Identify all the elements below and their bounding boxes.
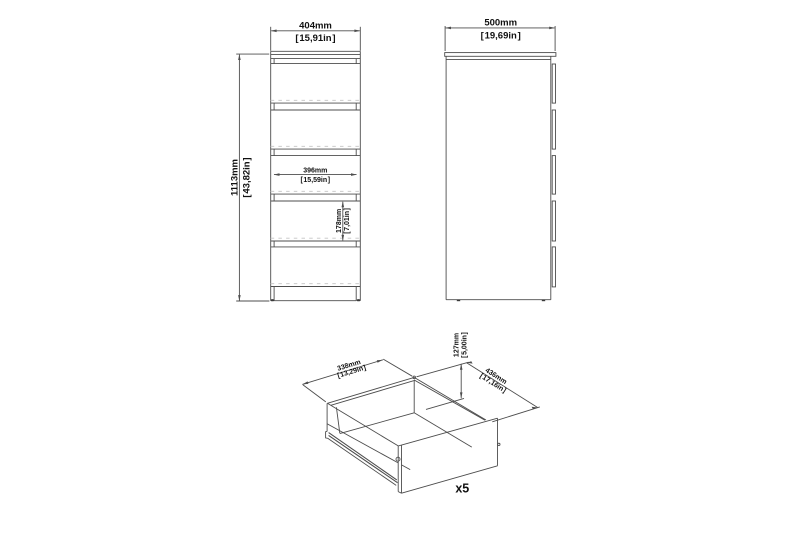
svg-text:404mm: 404mm — [299, 21, 332, 32]
svg-text:1113mm: 1113mm — [230, 159, 241, 196]
svg-text:[ 15,59in ]: [ 15,59in ] — [301, 177, 331, 184]
svg-text:x5: x5 — [455, 482, 469, 496]
svg-text:500mm: 500mm — [484, 18, 517, 29]
svg-text:127mm: 127mm — [453, 333, 460, 357]
svg-text:[ 5,00in ]: [ 5,00in ] — [462, 332, 469, 358]
svg-text:[ 15,91in ]: [ 15,91in ] — [295, 33, 335, 44]
svg-text:[ 7,01in ]: [ 7,01in ] — [344, 208, 351, 234]
svg-text:[ 43,82in ]: [ 43,82in ] — [241, 157, 252, 197]
svg-text:[ 19,69in ]: [ 19,69in ] — [481, 30, 521, 41]
svg-text:178mm: 178mm — [336, 209, 343, 233]
svg-text:396mm: 396mm — [303, 168, 327, 175]
